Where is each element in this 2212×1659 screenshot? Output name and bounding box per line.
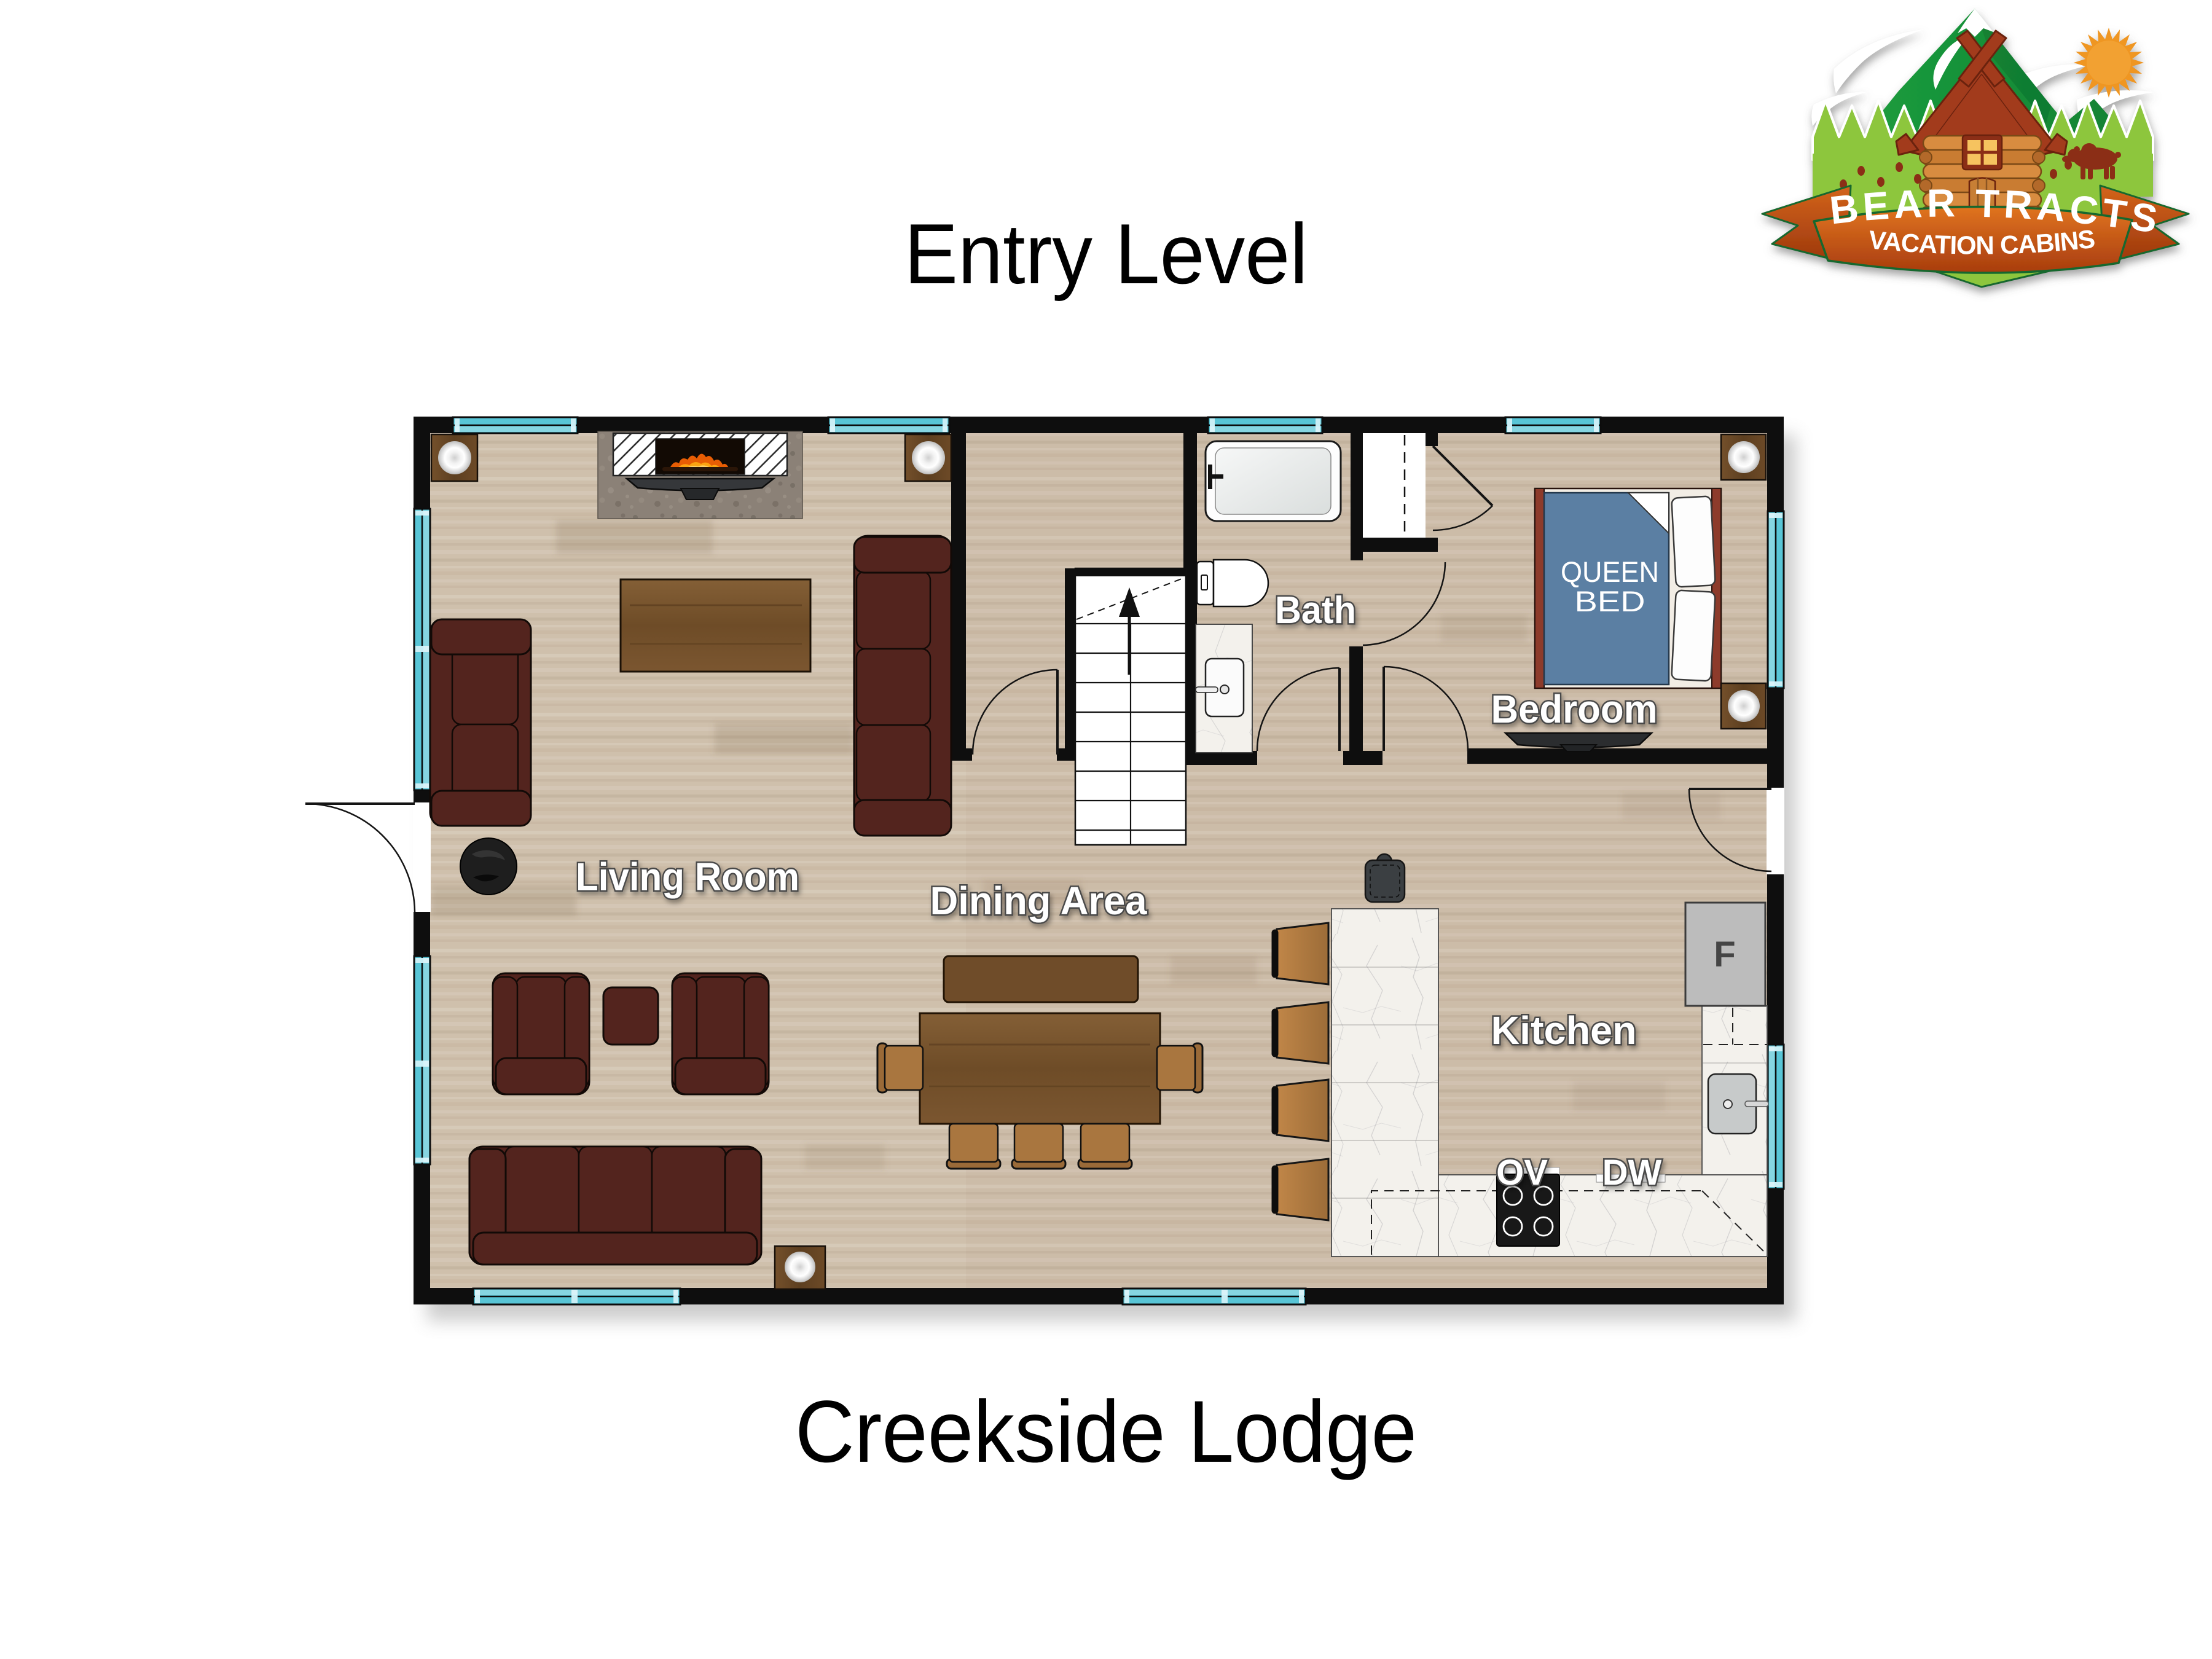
svg-text:OV: OV [1496, 1153, 1548, 1193]
svg-text:Creekside Lodge: Creekside Lodge [795, 1383, 1417, 1481]
svg-text:Dining Area: Dining Area [930, 879, 1147, 923]
svg-text:Bath: Bath [1275, 589, 1356, 632]
svg-text:Bedroom: Bedroom [1491, 687, 1658, 731]
svg-text:Living Room: Living Room [576, 855, 799, 899]
svg-text:Entry Level: Entry Level [904, 206, 1308, 302]
svg-text:DW: DW [1602, 1153, 1662, 1193]
svg-text:F: F [1714, 935, 1735, 975]
svg-text:Kitchen: Kitchen [1491, 1008, 1637, 1053]
svg-text:QUEEN: QUEEN [1561, 555, 1659, 588]
svg-text:BED: BED [1575, 585, 1645, 618]
